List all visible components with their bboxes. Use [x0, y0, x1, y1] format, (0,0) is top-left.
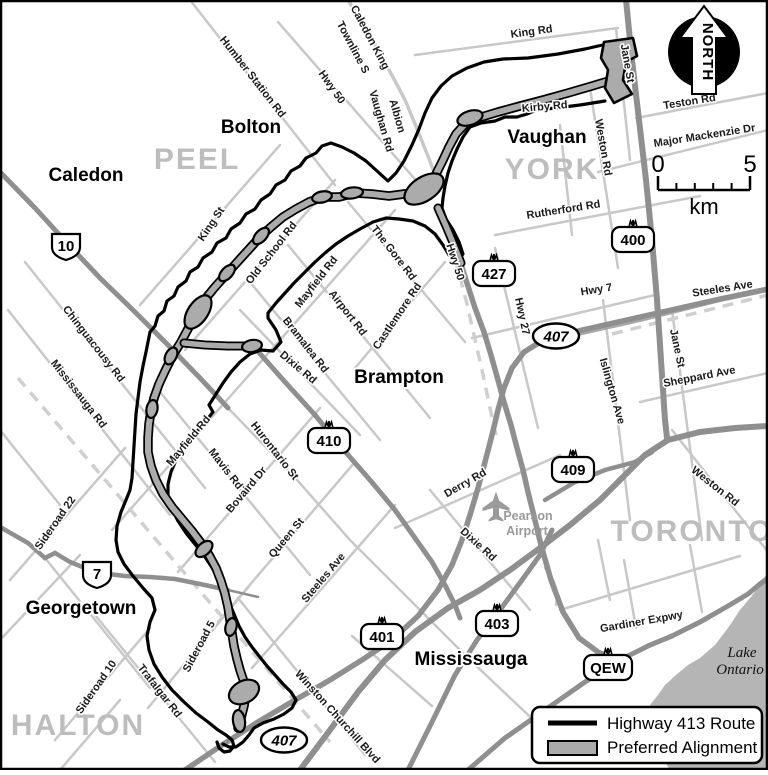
provincial-shield-icon: 7 — [83, 562, 111, 588]
toll-shield-icon: 407 — [533, 324, 579, 349]
region-label: TORONTO — [611, 515, 768, 548]
provincial-shield-icon: 10 — [52, 234, 80, 260]
region-label: HALTON — [11, 709, 145, 742]
map: Pearson Airport Lake Ontario PEELYORKHAL… — [0, 0, 768, 770]
shield-number: 403 — [484, 616, 509, 633]
city-label: Mississauga — [415, 649, 528, 670]
airport-label-line1: Pearson — [503, 509, 552, 523]
city-label: Brampton — [354, 367, 444, 388]
shield-number: 407 — [270, 733, 297, 750]
shield-number: 400 — [620, 232, 645, 249]
shield-number: QEW — [590, 660, 627, 677]
city-label: Vaughan — [507, 127, 586, 148]
legend-alignment-label: Preferred Alignment — [607, 738, 758, 757]
region-label: PEEL — [154, 143, 240, 176]
legend-route-label: Highway 413 Route — [607, 714, 755, 733]
shield-number: 7 — [93, 566, 101, 583]
legend: Highway 413 Route Preferred Alignment — [532, 707, 762, 763]
toll-shield-icon: 407 — [261, 728, 307, 753]
shield-number: 10 — [58, 238, 75, 255]
region-label: YORK — [505, 153, 600, 186]
airport-label-line2: Airport — [506, 524, 549, 538]
scale-unit: km — [689, 194, 718, 219]
city-label: Caledon — [49, 165, 124, 186]
lake-label-line2: Ontario — [716, 662, 764, 678]
shield-number: 409 — [560, 462, 585, 479]
scale-start: 0 — [651, 151, 664, 178]
shield-number: 427 — [481, 266, 506, 283]
city-label: Georgetown — [26, 598, 137, 619]
shield-number: 407 — [542, 329, 569, 346]
highway-413-map: Pearson Airport Lake Ontario PEELYORKHAL… — [0, 0, 768, 770]
shield-number: 401 — [369, 629, 394, 646]
scale-end: 5 — [743, 151, 756, 178]
lake-label-line1: Lake — [726, 645, 757, 661]
north-label: NORTH — [699, 23, 716, 81]
city-label: Bolton — [221, 117, 281, 138]
legend-alignment-swatch — [548, 741, 597, 755]
shield-number: 410 — [316, 433, 341, 450]
